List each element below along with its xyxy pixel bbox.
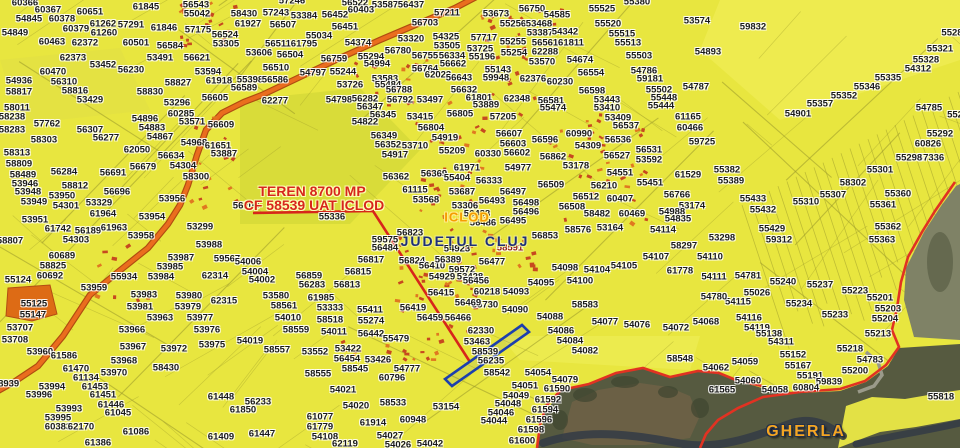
parcel-label: 58807 — [0, 236, 23, 246]
building — [597, 168, 603, 172]
parcel-label: 54783 — [857, 355, 883, 365]
building — [113, 295, 116, 299]
parcel-label: 60692 — [37, 271, 63, 281]
parcel-label: 55256 — [500, 19, 526, 29]
building — [189, 199, 194, 204]
parcel-label: 56510 — [263, 63, 289, 73]
parcel-label: 55240 — [770, 277, 796, 287]
parcel-label: 56589 — [231, 83, 257, 93]
parcel-label: 53960 — [27, 347, 53, 357]
parcel-label: 57291 — [118, 20, 144, 30]
parcel-label: 57243 — [263, 8, 289, 18]
parcel-label: 56230 — [118, 65, 144, 75]
parcel-label: 62315 — [211, 296, 237, 306]
parcel-label: 56477 — [479, 257, 505, 267]
parcel-label: 60379 — [63, 24, 89, 34]
parcel-label: 59948 — [483, 73, 509, 83]
parcel-label: 53298 — [709, 233, 735, 243]
parcel-label: 58533 — [380, 398, 406, 408]
parcel-label: 60466 — [677, 123, 703, 133]
parcel-label: 55382 — [714, 165, 740, 175]
building — [203, 186, 209, 190]
building — [586, 120, 589, 122]
building — [404, 353, 409, 356]
parcel-label: 55213 — [865, 329, 891, 339]
parcel-label: 54797 — [300, 68, 326, 78]
parcel-label: 58430 — [153, 363, 179, 373]
parcel-label: 56586 — [262, 75, 288, 85]
building — [198, 197, 202, 200]
parcel-label: 60990 — [566, 129, 592, 139]
parcel-label: 61045 — [105, 408, 131, 418]
parcel-label: 56679 — [130, 162, 156, 172]
parcel-label: 60948 — [400, 415, 426, 425]
parcel-label: 61846 — [151, 23, 177, 33]
parcel-label: 56602 — [504, 148, 530, 158]
parcel-label: 55451 — [637, 178, 663, 188]
parcel-label: 61600 — [509, 436, 535, 446]
building — [405, 250, 409, 253]
building — [518, 112, 523, 117]
parcel-label: 56235 — [478, 356, 504, 366]
parcel-label: 55244 — [330, 67, 356, 77]
parcel-label: 53452 — [90, 60, 116, 70]
parcel-label: 53571 — [179, 117, 205, 127]
parcel-label: 55298 — [896, 153, 922, 163]
parcel-label: 60463 — [39, 37, 65, 47]
parcel-label: 54798 — [326, 95, 352, 105]
building — [488, 19, 493, 24]
building — [606, 161, 610, 164]
parcel-label: 53887 — [211, 149, 237, 159]
parcel-label: 61409 — [208, 432, 234, 442]
parcel-label: 54309 — [575, 141, 601, 151]
building — [482, 117, 487, 120]
parcel-label: 61914 — [360, 418, 386, 428]
parcel-label: 61918 — [206, 76, 232, 86]
parcel-label: 57762 — [34, 119, 60, 129]
building — [419, 209, 422, 212]
parcel-label: 59312 — [766, 235, 792, 245]
parcel-label: 55147 — [20, 310, 46, 320]
parcel-label: 53299 — [187, 222, 213, 232]
parcel-label: 55307 — [820, 190, 846, 200]
building — [111, 257, 117, 261]
parcel-label: 54026 — [385, 440, 411, 448]
parcel-label: 56442 — [358, 329, 384, 339]
parcel-label: 58283 — [0, 125, 25, 135]
building — [385, 344, 389, 348]
parcel-label: 56527 — [604, 151, 630, 161]
parcel-label: 58303 — [31, 135, 57, 145]
parcel-label: 56508 — [559, 202, 585, 212]
parcel-label: 53963 — [147, 313, 173, 323]
building — [531, 251, 536, 255]
building — [187, 42, 192, 45]
parcel-label: 55209 — [439, 146, 465, 156]
building — [427, 338, 430, 341]
parcel-label: 62050 — [124, 145, 150, 155]
parcel-label: 59839 — [816, 377, 842, 387]
parcel-label: 54115 — [725, 297, 751, 307]
building — [643, 170, 649, 175]
parcel-label: 56596 — [532, 135, 558, 145]
parcel-label: 53958 — [128, 231, 154, 241]
parcel-label: 55352 — [831, 91, 857, 101]
building — [480, 167, 485, 170]
building — [629, 220, 635, 226]
parcel-label: 54059 — [732, 357, 758, 367]
parcel-label: 54011 — [321, 327, 347, 337]
parcel-label: 53154 — [433, 402, 459, 412]
parcel-label: 61590 — [544, 384, 570, 394]
parcel-label: 55818 — [928, 392, 954, 402]
building — [641, 128, 645, 132]
parcel-label: 61795 — [291, 39, 317, 49]
parcel-label: 54060 — [735, 376, 761, 386]
parcel-label: 54936 — [6, 76, 32, 86]
parcel-label: 56766 — [664, 190, 690, 200]
building — [436, 333, 439, 336]
parcel-label: 56362 — [383, 172, 409, 182]
parcel-label: 62376 — [520, 74, 546, 84]
parcel-label: 53959 — [81, 283, 107, 293]
building — [434, 351, 439, 356]
parcel-label: 55274 — [358, 316, 384, 326]
parcel-label: 61586 — [51, 351, 77, 361]
parcel-label: 59832 — [740, 22, 766, 32]
parcel-label: 53570 — [529, 57, 555, 67]
parcel-label: 56691 — [100, 168, 126, 178]
parcel-label: 61742 — [45, 224, 71, 234]
parcel-label: 53429 — [77, 95, 103, 105]
parcel-label: 53979 — [175, 302, 201, 312]
parcel-label: 56792 — [387, 95, 413, 105]
parcel-label: 54781 — [735, 271, 761, 281]
parcel-label: 54929 — [429, 272, 455, 282]
parcel-label: 54674 — [567, 55, 593, 65]
parcel-label: 54374 — [345, 38, 371, 48]
building — [418, 275, 422, 278]
parcel-label: 54342 — [552, 27, 578, 37]
parcel-label: 54062 — [703, 363, 729, 373]
parcel-label: 58555 — [305, 369, 331, 379]
parcel-label: 54977 — [505, 163, 531, 173]
parcel-label: 54867 — [147, 132, 173, 142]
building — [423, 273, 428, 277]
parcel-label: 53972 — [161, 344, 187, 354]
parcel-label: 53333 — [317, 303, 343, 313]
parcel-label: 53587 — [372, 0, 398, 10]
parcel-label: 58583 — [572, 300, 598, 310]
parcel-label: 54107 — [643, 252, 669, 262]
parcel-label: 58830 — [137, 87, 163, 97]
parcel-label: 54785 — [916, 103, 942, 113]
parcel-label: 55361 — [870, 200, 896, 210]
parcel-label: 56750 — [519, 4, 545, 14]
parcel-label: 61448 — [208, 392, 234, 402]
parcel-label: 56853 — [532, 231, 558, 241]
parcel-label: 60230 — [547, 77, 573, 87]
parcel-label: 62277 — [262, 96, 288, 106]
parcel-label: 54893 — [695, 47, 721, 57]
building — [526, 256, 531, 260]
parcel-label: 54068 — [693, 317, 719, 327]
parcel-label: 54312 — [905, 64, 931, 74]
parcel-label: 55432 — [750, 205, 776, 215]
parcel-label: 53976 — [194, 325, 220, 335]
building — [406, 64, 411, 69]
parcel-label: 54311 — [768, 337, 794, 347]
parcel-label: 56484 — [372, 243, 398, 253]
parcel-label: 53574 — [684, 16, 710, 26]
parcel-label: 54058 — [762, 385, 788, 395]
parcel-label: 54095 — [528, 278, 554, 288]
building — [202, 204, 208, 210]
parcel-label: 55234 — [786, 299, 812, 309]
building — [560, 129, 564, 133]
parcel-label: 60501 — [123, 38, 149, 48]
parcel-label: 53305 — [213, 39, 239, 49]
parcel-label: 53568 — [413, 195, 439, 205]
parcel-label: 58545 — [342, 364, 368, 374]
parcel-label: 61964 — [90, 209, 116, 219]
building — [517, 264, 521, 269]
parcel-label: 54111 — [701, 272, 726, 282]
building — [599, 113, 602, 116]
parcel-label: 55479 — [383, 334, 409, 344]
parcel-label: 62373 — [60, 53, 86, 63]
building — [429, 183, 434, 187]
building — [420, 351, 424, 353]
parcel-label: 53320 — [398, 34, 424, 44]
building — [180, 35, 183, 39]
building — [97, 263, 102, 267]
parcel-label: 56815 — [345, 267, 371, 277]
parcel-label: 55152 — [780, 350, 806, 360]
parcel-label: 60407 — [607, 194, 633, 204]
parcel-label: 60330 — [475, 149, 501, 159]
parcel-label: 53491 — [147, 53, 173, 63]
parcel-label: 55204 — [872, 314, 898, 324]
parcel-label: 54105 — [611, 261, 637, 271]
parcel-label: 55042 — [184, 9, 210, 19]
parcel-label: 55223 — [842, 286, 868, 296]
annotation-cf: CF 58539 UAT ICLOD — [244, 197, 385, 213]
parcel-label: 62372 — [72, 38, 98, 48]
parcel-label: 56759 — [321, 54, 347, 64]
parcel-label: 53708 — [2, 335, 28, 345]
parcel-label: 53552 — [302, 347, 328, 357]
parcel-label: 61386 — [85, 438, 111, 448]
parcel-label: 53977 — [187, 313, 213, 323]
parcel-label: 56466 — [445, 313, 471, 323]
parcel-label: 53707 — [7, 323, 33, 333]
building — [533, 267, 538, 271]
parcel-label: 54076 — [624, 320, 650, 330]
parcel-label: 58542 — [484, 368, 510, 378]
parcel-label: 55360 — [885, 189, 911, 199]
parcel-label: 59181 — [637, 74, 663, 84]
parcel-label: 58548 — [667, 354, 693, 364]
building — [422, 280, 426, 283]
parcel-label: 53949 — [21, 197, 47, 207]
parcel-label: 57246 — [279, 0, 305, 6]
parcel-label: 54845 — [16, 14, 42, 24]
parcel-label: 58518 — [317, 315, 343, 325]
parcel-label: 53968 — [111, 356, 137, 366]
parcel-label: 53966 — [119, 325, 145, 335]
parcel-label: 54020 — [343, 401, 369, 411]
parcel-label: 62314 — [202, 271, 228, 281]
parcel-label: 56605 — [202, 93, 228, 103]
parcel-label: 62348 — [504, 94, 530, 104]
parcel-label: 55310 — [793, 197, 819, 207]
building — [596, 119, 601, 124]
parcel-label: 53592 — [636, 155, 662, 165]
parcel-label: 53164 — [597, 223, 623, 233]
parcel-label: 56456 — [463, 276, 489, 286]
parcel-label: 60651 — [77, 7, 103, 17]
parcel-label: 61927 — [235, 19, 261, 29]
parcel-label: 53954 — [139, 212, 165, 222]
parcel-label: 58827 — [165, 78, 191, 88]
parcel-label: 61850 — [230, 405, 256, 415]
parcel-label: 56621 — [184, 53, 210, 63]
parcel-label: 54044 — [481, 416, 507, 426]
parcel-label: 54994 — [364, 59, 390, 69]
parcel-label: 62330 — [468, 326, 494, 336]
parcel-label: 62170 — [68, 422, 94, 432]
parcel-label: 55237 — [807, 280, 833, 290]
parcel-label: 61165 — [675, 112, 701, 122]
building — [480, 128, 486, 133]
building — [450, 228, 454, 232]
parcel-label: 56210 — [591, 181, 617, 191]
building — [639, 133, 644, 138]
parcel-label: 53889 — [473, 100, 499, 110]
parcel-label: 55503 — [626, 51, 652, 61]
parcel-label: 56536 — [605, 135, 631, 145]
parcel-label: 57211 — [434, 8, 460, 18]
parcel-label: 56554 — [578, 68, 604, 78]
cadastral-map[interactable]: 6036660367606516184556543550425724656522… — [0, 0, 960, 448]
building — [125, 243, 131, 249]
parcel-label: 56493 — [479, 196, 505, 206]
parcel-label: 55429 — [759, 224, 785, 234]
building — [399, 266, 403, 270]
building — [406, 78, 411, 80]
parcel-label: 56451 — [332, 22, 358, 32]
parcel-label: 54835 — [665, 214, 691, 224]
parcel-label: 55201 — [867, 293, 893, 303]
parcel-label: 57717 — [471, 33, 497, 43]
parcel-label: 53426 — [365, 355, 391, 365]
parcel-label: 61598 — [518, 425, 544, 435]
parcel-label: 61845 — [133, 2, 159, 12]
building — [639, 173, 643, 177]
building — [218, 22, 223, 26]
parcel-label: 56584 — [157, 41, 183, 51]
parcel-label: 56703 — [412, 18, 438, 28]
parcel-label: 56415 — [428, 288, 454, 298]
parcel-label: 54077 — [592, 317, 618, 327]
parcel-label: 55380 — [624, 0, 650, 7]
parcel-label: 53984 — [148, 272, 174, 282]
parcel-label: 54901 — [785, 109, 811, 119]
parcel-label: 57175 — [185, 25, 211, 35]
parcel-label: 54098 — [552, 263, 578, 273]
building — [208, 19, 212, 23]
parcel-label: 60804 — [793, 383, 819, 393]
building — [471, 252, 476, 255]
parcel-label: 54917 — [382, 150, 408, 160]
building — [398, 280, 404, 284]
parcel-label: 56643 — [446, 73, 472, 83]
parcel-label: 56389 — [435, 255, 461, 265]
parcel-label: 55218 — [837, 344, 863, 354]
building — [102, 250, 108, 253]
parcel-label: 58561 — [271, 301, 297, 311]
parcel-label: 56333 — [476, 176, 502, 186]
parcel-label: 55363 — [869, 235, 895, 245]
parcel-label: 53996 — [26, 390, 52, 400]
building — [564, 218, 568, 222]
parcel-label: 56507 — [270, 20, 296, 30]
parcel-label: 55301 — [867, 165, 893, 175]
parcel-label: 54088 — [537, 312, 563, 322]
parcel-label: 55444 — [648, 101, 674, 111]
parcel-label: 53296 — [164, 98, 190, 108]
building — [492, 249, 495, 253]
parcel-label: 53970 — [101, 368, 127, 378]
parcel-label: 55404 — [444, 173, 470, 183]
parcel-label: 54021 — [330, 385, 356, 395]
parcel-label: 54082 — [572, 346, 598, 356]
parcel-label: 55321 — [927, 44, 953, 54]
parcel-label: 55362 — [875, 222, 901, 232]
parcel-label: 60218 — [474, 287, 500, 297]
parcel-label: 58300 — [183, 172, 209, 182]
county-label-cluj: JUDEȚUL CLUJ — [401, 233, 530, 249]
parcel-label: 61529 — [675, 170, 701, 180]
parcel-label: 55346 — [854, 82, 880, 92]
parcel-label: 54304 — [170, 161, 196, 171]
building — [415, 294, 418, 297]
parcel-label: 58302 — [840, 178, 866, 188]
building — [533, 96, 537, 100]
parcel-label: 55124 — [5, 275, 31, 285]
parcel-label: 57205 — [490, 112, 516, 122]
building — [426, 356, 430, 361]
parcel-label: 58313 — [4, 148, 30, 158]
building — [472, 130, 477, 134]
building — [438, 339, 444, 344]
parcel-label: 53497 — [417, 95, 443, 105]
building — [402, 357, 407, 362]
parcel-label: 58559 — [283, 325, 309, 335]
parcel-label: 53967 — [120, 342, 146, 352]
parcel-label: 54100 — [567, 276, 593, 286]
parcel-label: 54072 — [663, 323, 689, 333]
parcel-label: 53178 — [563, 161, 589, 171]
parcel-label: 56780 — [385, 46, 411, 56]
building — [401, 67, 405, 71]
parcel-label: 54301 — [53, 201, 79, 211]
parcel-label: 58238 — [0, 112, 25, 122]
parcel-label: 58576 — [565, 225, 591, 235]
building — [186, 39, 189, 42]
